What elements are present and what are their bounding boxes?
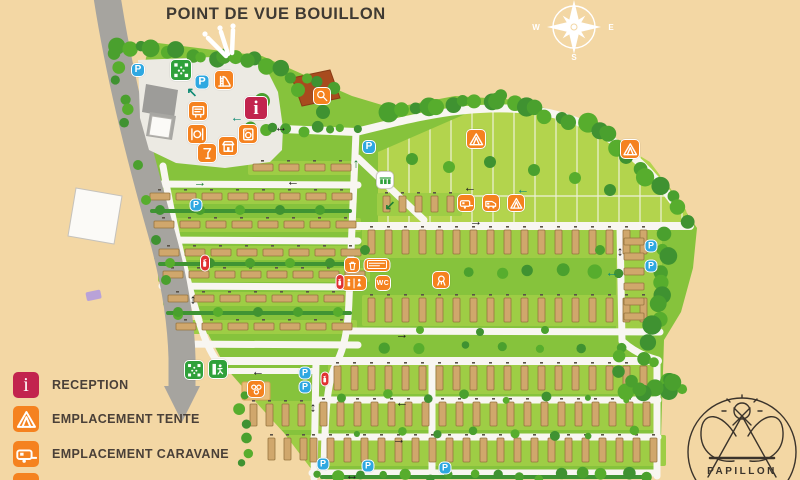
tree xyxy=(280,123,291,134)
legend-label: RECEPTION xyxy=(52,378,129,392)
pitch-number xyxy=(301,267,304,269)
pitch xyxy=(490,402,497,426)
tree xyxy=(258,58,275,75)
tree xyxy=(108,47,120,59)
pitch-number xyxy=(472,294,475,296)
pitch xyxy=(541,402,548,426)
pitch-number xyxy=(387,294,390,296)
tree xyxy=(285,258,295,268)
pitch xyxy=(383,196,390,212)
pitch-number xyxy=(373,398,376,400)
tree xyxy=(444,470,453,479)
pitch xyxy=(168,295,188,302)
caravan-icon xyxy=(13,441,39,467)
tree xyxy=(424,394,433,403)
pitch xyxy=(368,298,375,322)
pitch xyxy=(298,404,305,426)
pitch xyxy=(606,230,613,254)
pitch-number xyxy=(591,294,594,296)
pitch xyxy=(237,249,257,256)
pitch-number xyxy=(608,294,611,296)
campsite-map-page: W E S PAPILLON PPiPPWCPPPPPPP↔←→←↖←←→↑↙↕… xyxy=(0,0,800,480)
pitch xyxy=(599,438,606,462)
pitch xyxy=(215,271,235,278)
reception-icon: i xyxy=(13,372,39,398)
tree xyxy=(521,265,532,276)
pitch-number xyxy=(506,226,509,228)
pitch-number xyxy=(240,217,243,219)
pitch-number xyxy=(387,226,390,228)
tree xyxy=(657,227,672,242)
tree xyxy=(360,245,370,255)
pitch xyxy=(521,366,528,390)
pitch-number xyxy=(340,319,343,321)
tree xyxy=(633,383,647,397)
pitch xyxy=(453,298,460,322)
pitch xyxy=(150,193,170,200)
tree xyxy=(213,307,223,317)
pitch xyxy=(589,366,596,390)
pitch xyxy=(548,438,555,462)
pitch-number xyxy=(448,434,451,436)
pitch-number xyxy=(288,319,291,321)
pitch-number xyxy=(482,434,485,436)
tree xyxy=(556,468,567,479)
pitch xyxy=(521,230,528,254)
pitch xyxy=(327,438,334,462)
pitch-number xyxy=(349,245,352,247)
pitch xyxy=(250,404,257,426)
tree xyxy=(651,177,669,195)
tree xyxy=(650,295,667,312)
pitch-number xyxy=(438,362,441,364)
pitch xyxy=(298,295,318,302)
pitch-number xyxy=(300,400,303,402)
pitch-number xyxy=(228,291,231,293)
pitch xyxy=(606,298,613,322)
pitch xyxy=(300,438,307,460)
pitch-number xyxy=(254,291,257,293)
tree xyxy=(561,115,576,130)
pitch-number xyxy=(262,319,265,321)
tree xyxy=(354,125,362,133)
tree xyxy=(495,89,507,101)
pitch-number xyxy=(167,245,170,247)
pitch xyxy=(555,366,562,390)
tree xyxy=(195,205,205,215)
tree xyxy=(311,76,322,87)
tree xyxy=(541,326,549,334)
pitch xyxy=(470,298,477,322)
pitch xyxy=(504,230,511,254)
tree xyxy=(585,433,592,440)
pitch xyxy=(538,366,545,390)
pitch xyxy=(280,193,300,200)
pitch-number xyxy=(557,362,560,364)
pitch xyxy=(351,366,358,390)
pitch-number xyxy=(353,362,356,364)
pitch-number xyxy=(339,160,342,162)
tree xyxy=(245,258,255,268)
tree xyxy=(241,391,249,399)
tree xyxy=(119,118,129,128)
pitch-number xyxy=(332,291,335,293)
pitch-number xyxy=(275,267,278,269)
tree xyxy=(550,431,560,441)
pitch-number xyxy=(266,217,269,219)
pitch xyxy=(279,164,299,171)
pitch xyxy=(263,249,283,256)
pitch-number xyxy=(176,291,179,293)
pitch xyxy=(306,323,326,330)
pitch-number xyxy=(219,245,222,247)
tree xyxy=(557,263,570,276)
pitch xyxy=(624,268,644,275)
pitch-number xyxy=(591,226,594,228)
pitch-number xyxy=(286,434,289,436)
tree xyxy=(242,419,251,428)
pitch-number xyxy=(433,192,436,194)
pitch-number xyxy=(236,189,239,191)
pitch xyxy=(538,298,545,322)
pitch xyxy=(487,366,494,390)
tree xyxy=(642,315,661,334)
tree xyxy=(275,205,285,215)
tree xyxy=(613,350,626,363)
pitch xyxy=(341,249,361,256)
pitch xyxy=(531,438,538,462)
tree xyxy=(614,269,623,278)
tree xyxy=(576,344,586,354)
pitch xyxy=(453,366,460,390)
tree xyxy=(503,397,510,404)
pitch xyxy=(572,298,579,322)
pitch-number xyxy=(492,398,495,400)
tree xyxy=(528,164,540,176)
tree xyxy=(111,75,120,84)
pitch-number xyxy=(601,434,604,436)
pitch-number xyxy=(421,362,424,364)
tent-icon xyxy=(13,406,39,432)
tree xyxy=(649,357,659,367)
pitch-number xyxy=(202,291,205,293)
pitch xyxy=(176,193,196,200)
pitch-number xyxy=(245,245,248,247)
pitch xyxy=(241,271,261,278)
pitch-number xyxy=(197,267,200,269)
pitch-number xyxy=(385,192,388,194)
pitch-number xyxy=(287,160,290,162)
tree xyxy=(569,172,581,184)
pitch xyxy=(504,366,511,390)
tree xyxy=(511,429,520,438)
pitch xyxy=(385,230,392,254)
pitch-number xyxy=(252,400,255,402)
pitch xyxy=(306,193,326,200)
pitch-number xyxy=(618,434,621,436)
tree xyxy=(336,124,344,132)
compass-rose: W E S xyxy=(532,0,614,62)
tree xyxy=(660,247,678,265)
pitch xyxy=(402,298,409,322)
tree xyxy=(623,467,636,480)
pitch xyxy=(324,295,344,302)
pitch xyxy=(624,253,644,260)
pitch-number xyxy=(421,294,424,296)
pitch xyxy=(572,366,579,390)
pitch xyxy=(254,193,274,200)
pitch xyxy=(589,298,596,322)
tree xyxy=(494,470,503,479)
tree xyxy=(354,431,360,437)
pitch xyxy=(565,438,572,462)
tree xyxy=(238,459,245,466)
tree xyxy=(457,95,469,107)
pitch xyxy=(159,249,179,256)
pitch-number xyxy=(506,294,509,296)
pitch xyxy=(575,402,582,426)
tree xyxy=(459,389,469,399)
pitch-number xyxy=(193,245,196,247)
pitch-number xyxy=(475,398,478,400)
tree xyxy=(293,307,303,317)
pitch-number xyxy=(557,226,560,228)
pitch-number xyxy=(557,294,560,296)
pitch-number xyxy=(455,226,458,228)
pitch xyxy=(429,438,436,462)
tree xyxy=(406,153,418,165)
pitch xyxy=(337,402,344,426)
pitch xyxy=(331,164,351,171)
pitch-number xyxy=(533,434,536,436)
tree xyxy=(637,352,651,366)
pitch xyxy=(385,366,392,390)
pitch-number xyxy=(509,398,512,400)
pitch-number xyxy=(158,189,161,191)
tree xyxy=(313,471,320,478)
pitch-number xyxy=(188,217,191,219)
tree xyxy=(398,427,407,436)
pitch xyxy=(258,221,278,228)
tree xyxy=(195,52,205,62)
pitch xyxy=(202,193,222,200)
pitch xyxy=(555,230,562,254)
tree xyxy=(585,395,591,401)
pitch-number xyxy=(458,398,461,400)
pitch xyxy=(334,366,341,390)
pitch-number xyxy=(625,294,628,296)
pitch-number xyxy=(414,434,417,436)
pitch xyxy=(572,230,579,254)
pitch xyxy=(344,438,351,462)
pitch xyxy=(189,271,209,278)
pitch-number xyxy=(214,217,217,219)
pitch-number xyxy=(297,245,300,247)
pitch xyxy=(272,295,292,302)
pitch xyxy=(228,323,248,330)
tree xyxy=(577,467,589,479)
tree xyxy=(328,82,341,95)
pitch xyxy=(419,298,426,322)
tree xyxy=(315,205,325,215)
pitch-number xyxy=(280,291,283,293)
tree xyxy=(636,168,654,186)
tree xyxy=(302,73,312,83)
legend-item-caravan: EMPLACEMENT CARAVANE xyxy=(13,441,229,467)
pitch xyxy=(371,402,378,426)
pitch xyxy=(284,221,304,228)
compass-east: E xyxy=(608,23,614,32)
pitch-number xyxy=(506,362,509,364)
tree xyxy=(333,307,343,317)
pitch xyxy=(447,196,454,212)
pitch xyxy=(473,402,480,426)
pitch-number xyxy=(314,189,317,191)
pitch-number xyxy=(184,319,187,321)
compass-south: S xyxy=(571,53,577,62)
pitch-number xyxy=(306,291,309,293)
tree xyxy=(416,326,424,334)
pitch xyxy=(538,230,545,254)
pitch-number xyxy=(223,267,226,269)
pitch-number xyxy=(356,398,359,400)
tree xyxy=(670,199,685,214)
tree xyxy=(467,94,481,108)
pitch xyxy=(419,366,426,390)
pitch-number xyxy=(390,398,393,400)
pitch-number xyxy=(404,294,407,296)
pitch xyxy=(487,230,494,254)
pitch xyxy=(643,402,650,426)
pitch xyxy=(385,298,392,322)
tree xyxy=(240,53,254,67)
tree xyxy=(161,275,171,285)
pitch xyxy=(633,438,640,462)
tree xyxy=(122,41,137,56)
pitch-number xyxy=(284,400,287,402)
pitch xyxy=(354,402,361,426)
pitch xyxy=(436,298,443,322)
pitch xyxy=(470,366,477,390)
tree xyxy=(205,258,215,268)
tree xyxy=(476,328,484,336)
pitch-number xyxy=(489,362,492,364)
tree xyxy=(595,245,605,255)
tree xyxy=(394,102,409,117)
pitch-number xyxy=(336,362,339,364)
pitch xyxy=(436,230,443,254)
pitch xyxy=(395,438,402,462)
tree xyxy=(413,343,424,354)
tree xyxy=(464,267,474,277)
pitch xyxy=(154,221,174,228)
pitch xyxy=(439,402,446,426)
pitch-number xyxy=(314,319,317,321)
pitch-number xyxy=(407,398,410,400)
pitch-number xyxy=(455,362,458,364)
tree xyxy=(312,121,324,133)
pitch-number xyxy=(574,226,577,228)
tree xyxy=(112,61,125,74)
pitch-number xyxy=(560,398,563,400)
pitch-number xyxy=(652,434,655,436)
pitch-number xyxy=(465,434,468,436)
pitch-number xyxy=(162,217,165,219)
tree xyxy=(291,83,305,97)
pitch-number xyxy=(323,245,326,247)
pitch xyxy=(305,164,325,171)
pitch-number xyxy=(344,217,347,219)
pitch-number xyxy=(387,362,390,364)
tree xyxy=(285,72,296,83)
pitch-number xyxy=(288,189,291,191)
tree xyxy=(254,93,270,109)
pitch-number xyxy=(363,434,366,436)
pitch xyxy=(315,249,335,256)
pitch xyxy=(266,404,273,426)
pitch xyxy=(524,402,531,426)
pitch xyxy=(220,295,240,302)
legend-item-partial xyxy=(13,473,52,480)
pitch-number xyxy=(472,362,475,364)
pitch-number xyxy=(404,362,407,364)
pitch-number xyxy=(268,400,271,402)
pitch-number xyxy=(312,434,315,436)
tree xyxy=(173,307,183,317)
pitch xyxy=(280,323,300,330)
pitch-number xyxy=(313,160,316,162)
pitch xyxy=(267,271,287,278)
roadside-marker xyxy=(85,289,102,301)
pitch-number xyxy=(302,434,305,436)
tree xyxy=(299,126,310,137)
pitch xyxy=(194,295,214,302)
pitch-number xyxy=(271,245,274,247)
pitch xyxy=(446,438,453,462)
tree xyxy=(122,104,133,115)
tree xyxy=(241,433,252,444)
pitch-number xyxy=(401,192,404,194)
tree xyxy=(400,469,411,480)
pitch xyxy=(507,402,514,426)
pitch xyxy=(558,402,565,426)
pitch xyxy=(211,249,231,256)
tree xyxy=(326,125,334,133)
pitch-number xyxy=(380,434,383,436)
tree xyxy=(356,470,365,479)
outbuilding xyxy=(68,188,122,244)
pitch xyxy=(422,402,429,426)
pitch-number xyxy=(574,294,577,296)
pitch xyxy=(185,249,205,256)
pitch-number xyxy=(523,226,526,228)
campsite-logo: PAPILLON xyxy=(688,395,796,480)
pitch-number xyxy=(577,398,580,400)
tree xyxy=(155,205,165,215)
tree xyxy=(599,126,611,138)
pitch-number xyxy=(184,189,187,191)
tree xyxy=(469,427,478,436)
tree xyxy=(588,264,602,278)
pitch xyxy=(624,313,644,320)
pitch-number xyxy=(340,189,343,191)
pitch xyxy=(436,366,443,390)
pitch-number xyxy=(370,294,373,296)
pitch-number xyxy=(322,398,325,400)
pitch xyxy=(592,402,599,426)
tree xyxy=(233,403,245,415)
pitch xyxy=(514,438,521,462)
